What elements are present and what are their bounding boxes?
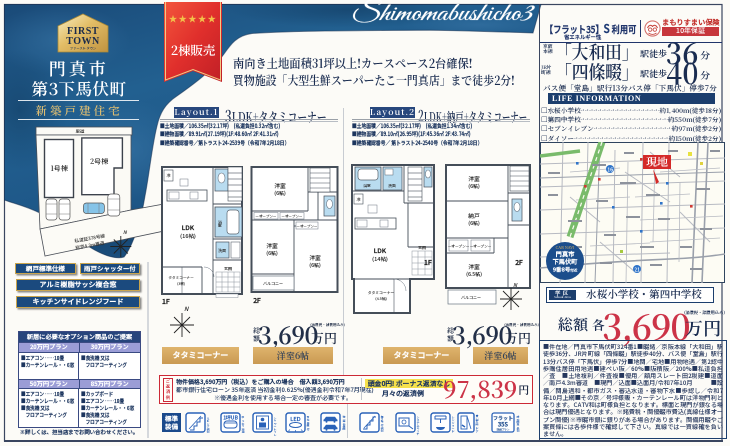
svg-text:(6帖): (6帖) — [309, 262, 321, 269]
svg-text:21: 21 — [634, 267, 640, 274]
svg-text:(16帖): (16帖) — [180, 232, 196, 240]
svg-text:証銀プラン: 証銀プラン — [497, 428, 510, 432]
svg-text:LED: LED — [290, 415, 300, 423]
svg-text:N: N — [184, 304, 189, 313]
svg-text:里道: 里道 — [76, 129, 86, 135]
svg-text:冷: 冷 — [357, 197, 361, 203]
svg-text:レンジフード: レンジフード — [450, 415, 455, 432]
svg-text:(6帖): (6帖) — [266, 250, 278, 257]
svg-text:LDK: LDK — [373, 245, 387, 255]
svg-text:バルコニー: バルコニー — [263, 281, 283, 287]
svg-text:シャワートイレ: シャワートイレ — [273, 416, 277, 436]
svg-text:タタミコーナー: タタミコーナー — [168, 275, 193, 281]
svg-text:16: 16 — [607, 167, 613, 174]
svg-text:冷: 冷 — [167, 173, 171, 179]
svg-text:洋室: 洋室 — [274, 181, 286, 190]
svg-text:物総2台築関: 物総2台築関 — [341, 415, 346, 431]
svg-text:N: N — [513, 281, 518, 289]
svg-text:洋室: 洋室 — [468, 262, 480, 271]
svg-text:★★★★★: ★★★★★ — [169, 13, 218, 25]
svg-text:2棟販売: 2棟販売 — [171, 41, 216, 59]
svg-text:洋室: 洋室 — [468, 174, 480, 183]
svg-text:(6.5帖): (6.5帖) — [466, 271, 482, 278]
svg-text:玄関: 玄関 — [417, 246, 426, 251]
svg-text:洋室: 洋室 — [266, 241, 278, 250]
svg-text:洗面: 洗面 — [387, 184, 396, 189]
svg-text:ーオープンー: ーオープンー — [448, 245, 470, 250]
svg-text:標り場付税利: 標り場付税利 — [379, 415, 384, 432]
svg-text:号坪様販付: 号坪様販付 — [305, 416, 310, 430]
svg-text:バルコニー: バルコニー — [461, 295, 481, 301]
svg-text:ーオープンー: ーオープンー — [282, 215, 303, 220]
svg-text:洋室: 洋室 — [309, 253, 321, 262]
svg-text:ゆったり浴税: ゆったり浴税 — [241, 416, 245, 433]
svg-text:システムキッチン: システムキッチン — [416, 415, 420, 436]
svg-text:ーオープンー: ーオープンー — [297, 225, 318, 230]
svg-text:浴室: 浴室 — [217, 220, 223, 228]
svg-text:リビング税利: リビング税利 — [206, 416, 210, 433]
svg-text:1坪UB: 1坪UB — [223, 415, 238, 422]
svg-text:納戸: 納戸 — [468, 211, 480, 220]
svg-text:(4.5帖): (4.5帖) — [375, 297, 387, 302]
svg-text:(6帖): (6帖) — [468, 220, 480, 227]
svg-text:装備: 装備 — [164, 421, 179, 431]
svg-text:(6帖): (6帖) — [468, 183, 480, 190]
svg-text:(14帖): (14帖) — [372, 255, 388, 263]
svg-text:費利玄関ドア: 費利玄関ドア — [474, 415, 479, 433]
svg-text:1号棟: 1号棟 — [50, 164, 67, 174]
svg-text:玄関: 玄関 — [223, 267, 232, 272]
svg-text:ーオープンー: ーオープンー — [256, 215, 277, 220]
svg-text:険認関定金利: 険認関定金利 — [515, 415, 520, 432]
svg-text:浴室: 浴室 — [362, 183, 371, 189]
svg-text:ーオープンー: ーオープンー — [470, 245, 492, 250]
svg-text:LDK: LDK — [181, 222, 195, 232]
svg-text:(3帖): (3帖) — [177, 282, 185, 287]
svg-text:現地: 現地 — [646, 154, 669, 170]
svg-text:(6帖): (6帖) — [274, 190, 286, 197]
svg-text:ファースト タウン: ファースト タウン — [70, 46, 96, 51]
svg-text:2号棟: 2号棟 — [90, 157, 108, 167]
svg-text:タタミコーナー: タタミコーナー — [368, 290, 395, 296]
svg-text:洗面: 洗面 — [218, 248, 226, 254]
